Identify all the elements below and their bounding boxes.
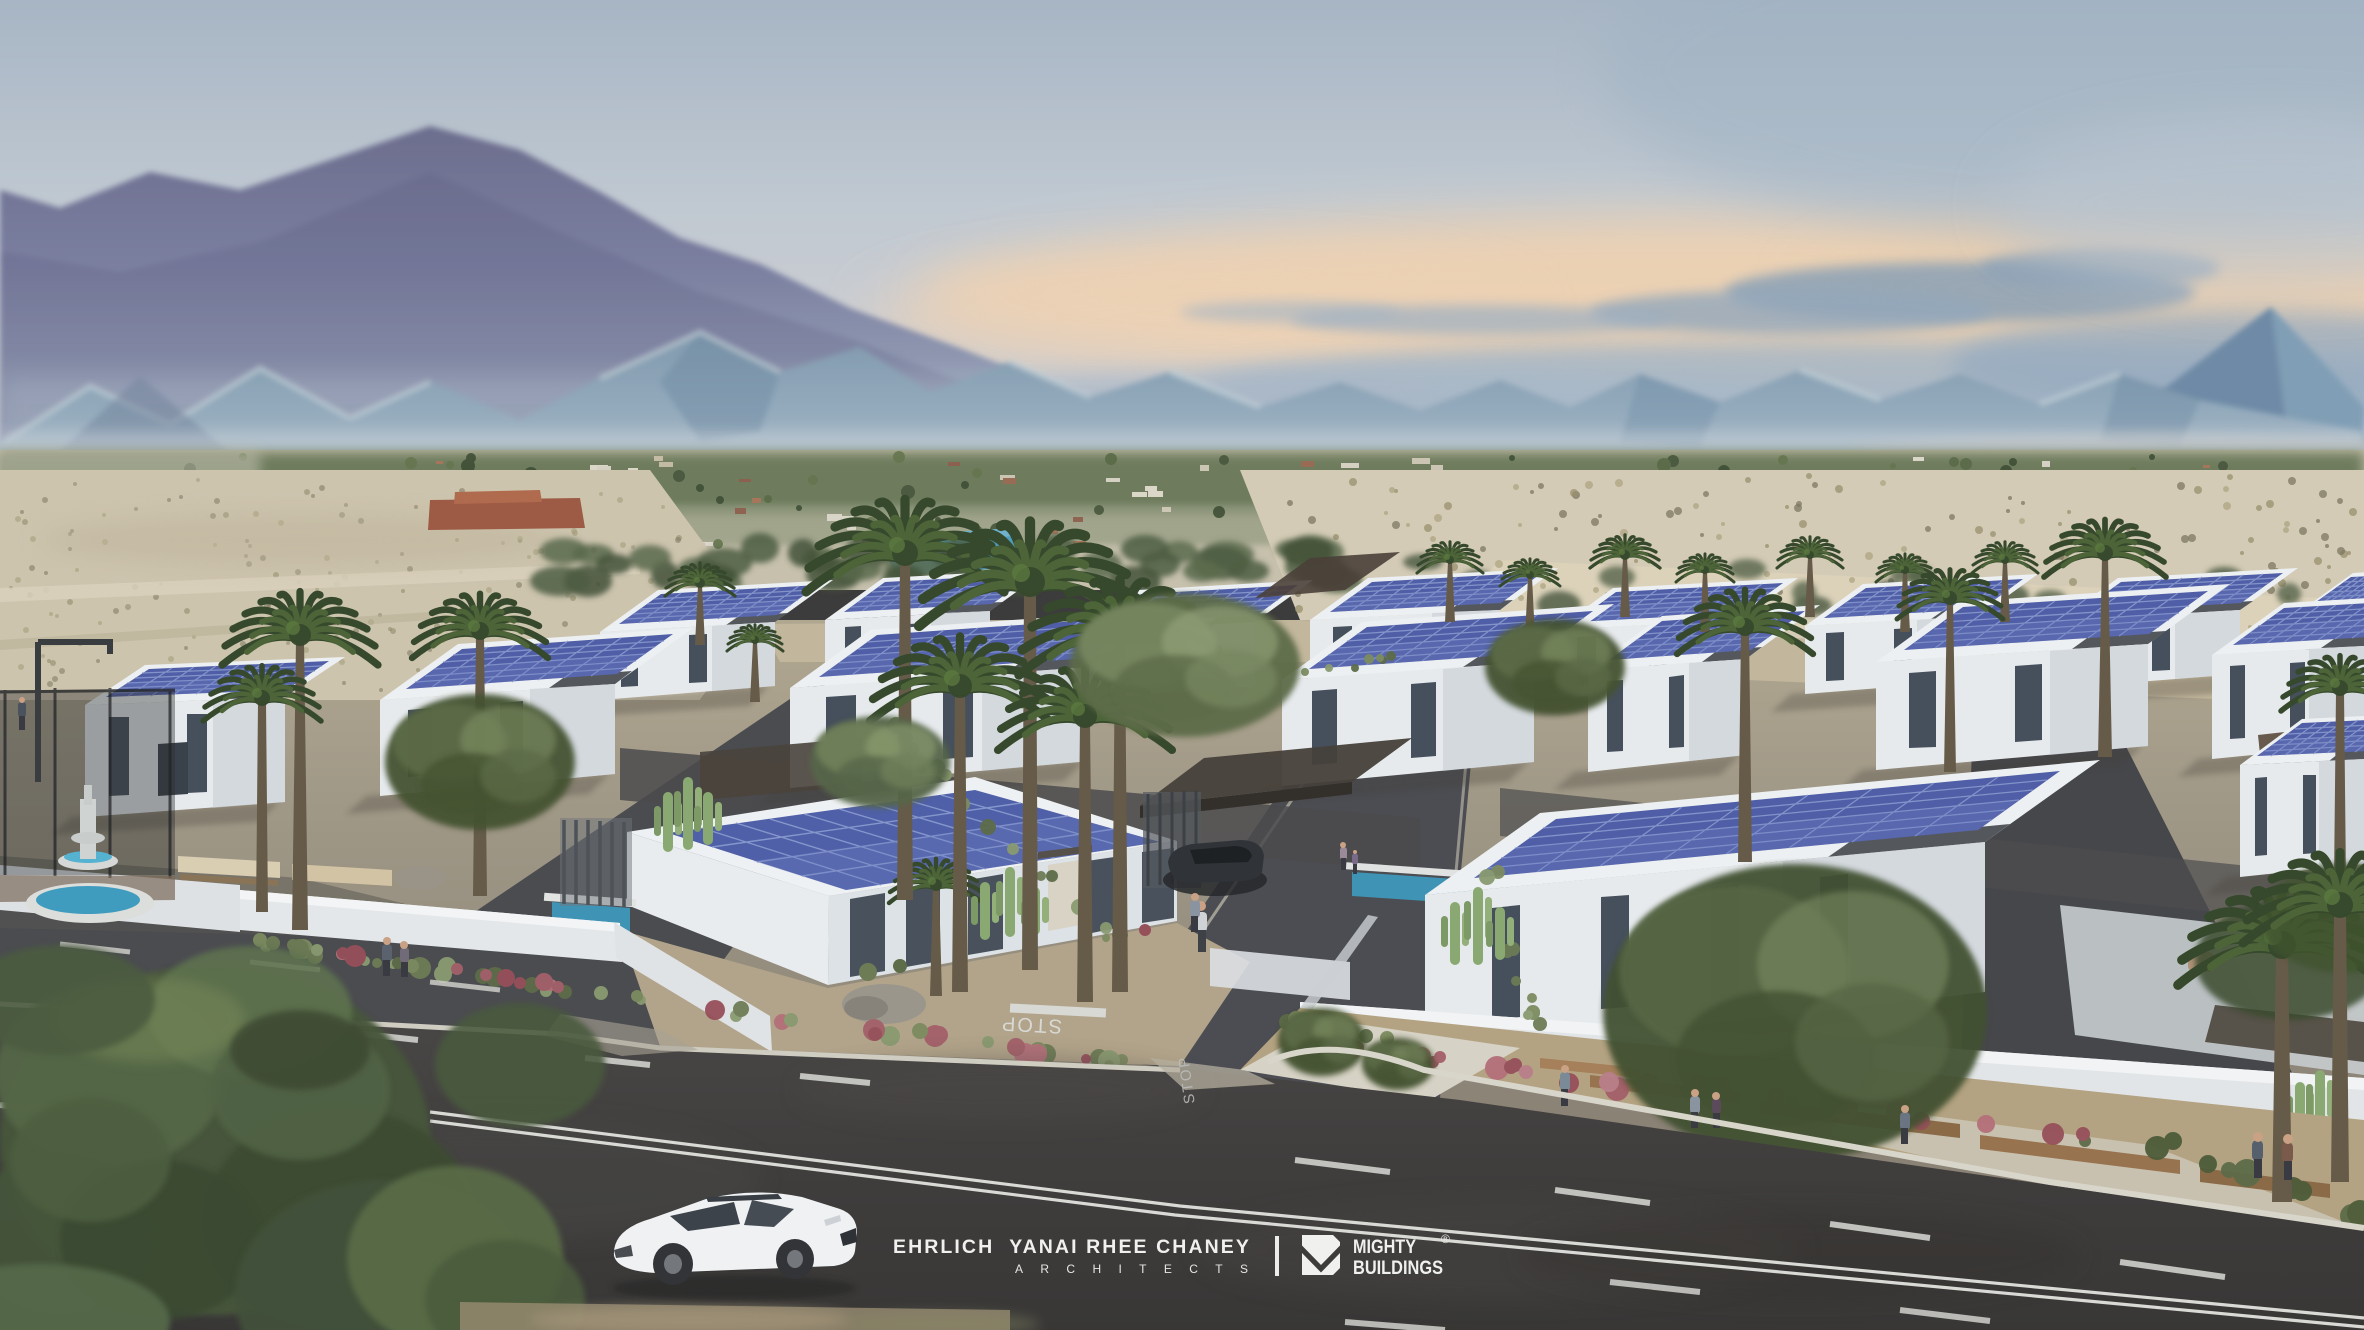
- svg-text:MIGHTY: MIGHTY: [1353, 1237, 1416, 1258]
- svg-text:STOP: STOP: [1000, 1012, 1063, 1037]
- svg-text:BUILDINGS: BUILDINGS: [1353, 1258, 1443, 1279]
- svg-text:®: ®: [1441, 1232, 1450, 1246]
- svg-text:EHRLICH YANAI RHEE CHANEY: EHRLICH YANAI RHEE CHANEY: [893, 1236, 1250, 1258]
